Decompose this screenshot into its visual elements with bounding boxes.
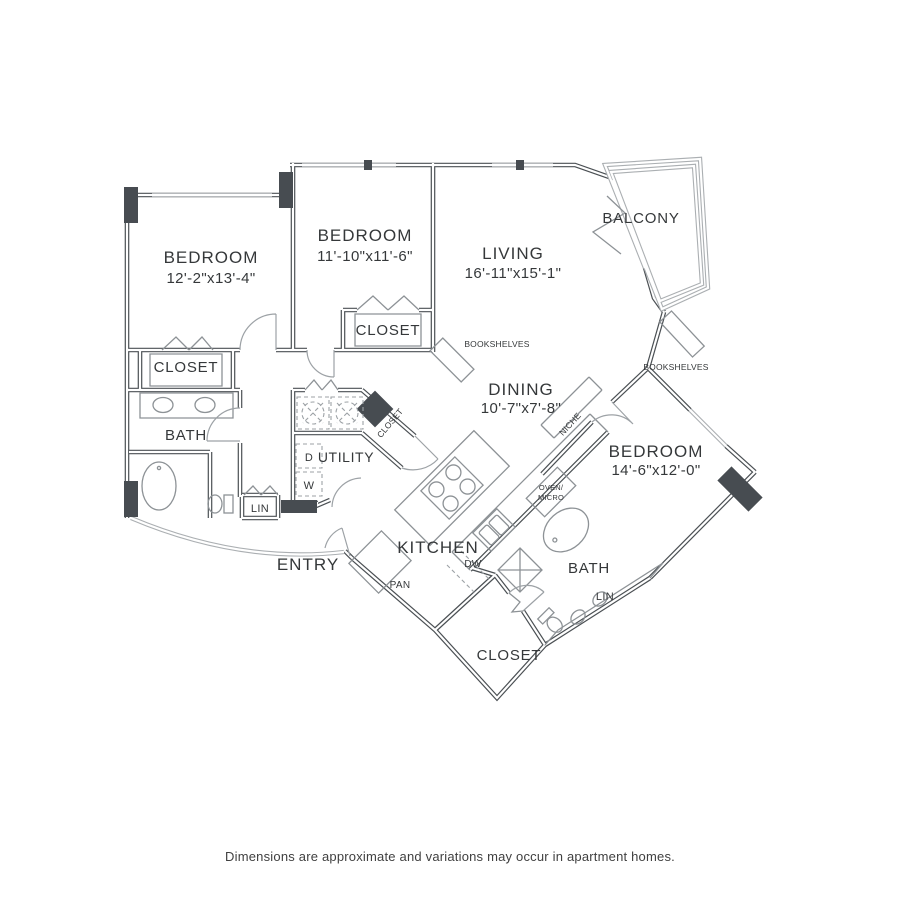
room-label-dining: DINING: [488, 380, 554, 399]
bathtub: [535, 499, 598, 561]
floor-plan-page: BEDROOM 12'-2"x13'-4" BEDROOM 11'-10"x11…: [0, 0, 900, 900]
label-bath-left: BATH: [165, 427, 207, 444]
window-mullion: [364, 160, 372, 170]
label-lin-left: LIN: [251, 503, 269, 515]
room-dims-dining: 10'-7"x7'-8": [481, 400, 561, 417]
room-dims-living: 16'-11"x15'-1": [465, 265, 562, 282]
label-dryer: D: [305, 452, 313, 464]
label-oven: OVEN/: [539, 483, 564, 492]
sink: [195, 398, 215, 413]
label-lin-right: LIN: [596, 591, 614, 603]
label-bookshelves-bedroom3: BOOKSHELVES: [643, 362, 708, 372]
tub-drain: [157, 466, 160, 469]
wall-post: [281, 500, 317, 513]
label-entry: ENTRY: [277, 555, 339, 574]
floor-plan-drawing: BEDROOM 12'-2"x13'-4" BEDROOM 11'-10"x11…: [0, 0, 900, 900]
room-label-balcony: BALCONY: [602, 210, 679, 227]
room-label-bedroom-2: BEDROOM: [318, 226, 413, 245]
label-closet-bottom: CLOSET: [477, 647, 542, 664]
label-pantry: PAN: [390, 580, 411, 591]
sink: [153, 398, 173, 413]
room-label-bedroom-1: BEDROOM: [164, 248, 259, 267]
label-washer: W: [304, 480, 315, 492]
room-label-living: LIVING: [482, 244, 544, 263]
wall-post: [279, 172, 293, 208]
room-label-bedroom-3: BEDROOM: [609, 442, 704, 461]
wall-post: [124, 187, 138, 223]
window-mullion: [516, 160, 524, 170]
bookshelf: [660, 311, 704, 357]
label-kitchen: KITCHEN: [397, 538, 479, 557]
room-dims-bedroom-2: 11'-10"x11'-6": [317, 248, 413, 265]
wall-post: [124, 481, 138, 517]
room-dims-bedroom-3: 14'-6"x12'-0": [611, 462, 700, 479]
toilet-tank: [224, 495, 233, 513]
label-dishwasher: DW: [464, 559, 482, 570]
label-micro: MICRO: [538, 493, 564, 502]
label-closet-bedroom2: CLOSET: [356, 322, 421, 339]
disclaimer-text: Dimensions are approximate and variation…: [225, 849, 675, 864]
label-closet-bedroom1: CLOSET: [154, 359, 219, 376]
walls: [125, 163, 755, 698]
room-dims-bedroom-1: 12'-2"x13'-4": [166, 270, 255, 287]
label-bookshelves-living: BOOKSHELVES: [464, 339, 529, 349]
label-utility: UTILITY: [318, 449, 374, 465]
label-bath-right: BATH: [568, 560, 610, 577]
kitchen-island: [395, 431, 510, 546]
